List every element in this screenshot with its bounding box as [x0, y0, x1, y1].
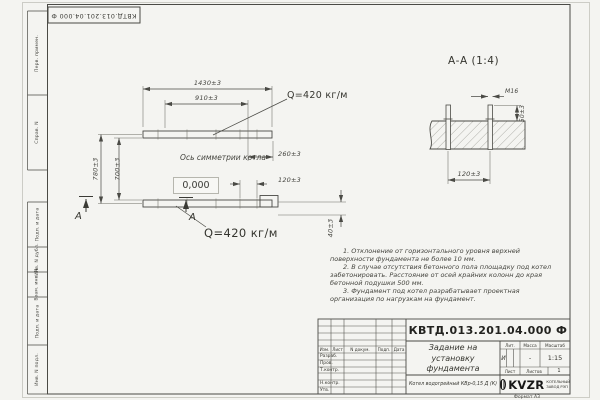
margin-cell-sprav-n: Справ. N	[27, 95, 48, 170]
tb-role-prov: Пров.	[320, 361, 333, 366]
margin-cell-podp-data-1: Подп. и дата	[27, 202, 48, 247]
logo-subtitle: КОТЕЛЬНЫЙ ЗАВОД РЭП	[546, 380, 570, 388]
margin-label: Подп. и дата	[35, 304, 40, 338]
dim-bolt-height-box: 50±3	[516, 103, 530, 124]
margin-label: Перв. примен.	[35, 34, 40, 71]
tb-role-utv: Утв.	[320, 388, 329, 393]
margin-label: Подп. и дата	[35, 208, 40, 242]
tb-role-tkontr: Т.контр.	[320, 368, 339, 373]
company-logo: KVZR КОТЕЛЬНЫЙ ЗАВОД РЭП	[500, 375, 570, 394]
tb-role-razrab: Разраб.	[320, 354, 337, 359]
product-name: Котел водогрейный КВр-0,15 Д (К)	[406, 375, 500, 394]
technical-notes: 1. Отклонение от горизонтального уровня …	[330, 247, 564, 303]
tb-mass-value: -	[520, 349, 540, 367]
top-stamp-text: КВТД.013.201.04.000 Ф	[51, 12, 136, 19]
dim-right-offset: 260±3	[278, 150, 301, 158]
tb-role-nkontr: Н.контр.	[320, 381, 340, 386]
tb-mass-header: Масса	[520, 341, 540, 349]
axis-of-symmetry-label: Ось симметрии котла	[173, 153, 273, 162]
top-stamp-cell: КВТД.013.201.04.000 Ф	[48, 7, 140, 23]
title-line: Задание на	[406, 343, 500, 354]
dim-left-inner: 700±3	[113, 158, 121, 181]
tb-lit-header: Лит.	[500, 341, 520, 349]
format-note: Формат А3	[497, 395, 557, 400]
note-1: 1. Отклонение от горизонтального уровня …	[330, 247, 564, 263]
drawing-sheet: КВТД.013.201.04.000 Ф Перв. примен. Спра…	[0, 0, 600, 400]
dim-bolt-height: 50±3	[520, 105, 527, 122]
tb-col-izm: Изм.	[318, 346, 331, 353]
tb-col-list: Лист	[331, 346, 344, 353]
tb-sheets-header: Листов	[520, 367, 548, 375]
drawing-title: Задание на установку фундамента	[406, 343, 500, 375]
dim-left-outer: 780±3	[91, 158, 99, 181]
tb-col-podp: Подп.	[376, 346, 392, 353]
logo-sub-line: ЗАВОД РЭП	[546, 385, 570, 389]
dim-rail-width: 40±3	[326, 219, 334, 238]
note-2: 2. В случае отсутствия бетонного пола пл…	[330, 263, 564, 287]
load-label-top: Q=420 кг/м	[287, 90, 348, 101]
elevation-mark: 0,000	[173, 177, 219, 194]
section-letter-left: А	[75, 211, 82, 222]
margin-cell-inv-podl: Инв. N подл.	[27, 345, 48, 394]
margin-label: Справ. N	[35, 121, 40, 144]
tb-scale-header: Масштаб	[540, 341, 570, 349]
margin-label: Взам. инв. N	[35, 268, 40, 300]
margin-cell-vzam-inv: Взам. инв. N	[27, 272, 48, 297]
dim-rail-width-box: 40±3	[322, 214, 338, 242]
dim-bolt-spacing-section: 120±3	[451, 170, 487, 178]
dim-overall-length: 1430±3	[143, 79, 272, 87]
logo-emblem-icon	[500, 379, 506, 390]
section-view-title: А-А (1:4)	[448, 55, 499, 67]
tb-sheet-header: Лист	[500, 367, 520, 375]
title-line: установку	[406, 354, 500, 365]
section-letter-right: А	[189, 212, 196, 223]
margin-cell-perv-primen: Перв. примен.	[27, 11, 48, 95]
dim-inner-length: 910±3	[165, 94, 248, 102]
margin-cell-podp-data-2: Подп. и дата	[27, 297, 48, 345]
dim-left-inner-box: 700±3	[110, 152, 124, 186]
doc-number: КВТД.013.201.04.000 Ф	[406, 319, 570, 341]
note-3: 3. Фундамент под котел разрабатывает про…	[330, 287, 564, 303]
dim-bolt-spacing-plan: 120±3	[278, 176, 301, 184]
bolt-size-label: М16	[505, 88, 518, 95]
load-label-bottom: Q=420 кг/м	[204, 226, 278, 240]
logo-sub-line: КОТЕЛЬНЫЙ	[546, 380, 570, 384]
title-line: фундамента	[406, 364, 500, 375]
tb-col-data: Дата	[392, 346, 406, 353]
logo-text: KVZR	[508, 378, 544, 392]
tb-lit-value: И	[500, 349, 507, 367]
dim-left-outer-box: 780±3	[88, 152, 102, 186]
margin-label: Инв. N подл.	[35, 353, 40, 386]
tb-col-ndokum: N докум.	[344, 346, 376, 353]
tb-scale-value: 1:15	[540, 349, 570, 367]
tb-sheets-value: 1	[548, 367, 570, 375]
